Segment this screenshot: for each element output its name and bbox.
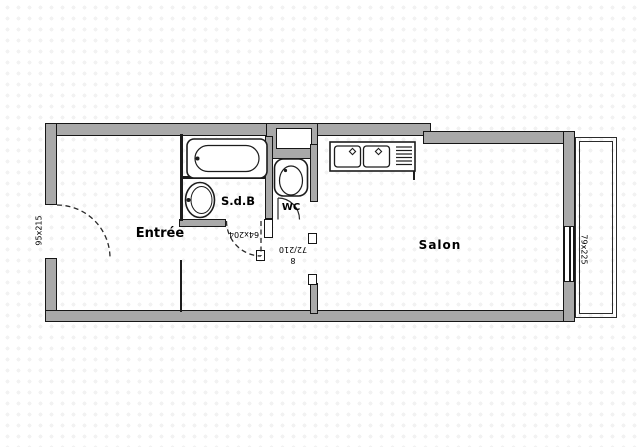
wall-top-right <box>423 131 575 144</box>
dim-entry-door: 95x215 <box>35 211 44 251</box>
jamb-salon-door-lower <box>308 274 317 285</box>
wall-sdb-wc <box>265 136 273 219</box>
wall-salon-upper <box>310 144 318 202</box>
jamb-salon-door-upper <box>308 233 317 244</box>
bathtub-icon <box>187 139 267 178</box>
fixtures-layer <box>0 0 640 447</box>
line-entree-partition <box>180 260 182 312</box>
room-label-entree: Entrée <box>124 226 196 241</box>
salon-window <box>563 227 575 281</box>
toilet-icon <box>275 159 308 196</box>
room-label-salon: Salon <box>404 238 476 252</box>
wall-left-upper <box>45 123 57 205</box>
dim-wc-door: 72/210 <box>273 245 313 254</box>
kitchen-sink-icon <box>330 142 415 171</box>
line-tub-front <box>181 176 266 179</box>
dim-sdb-door: 64x204 <box>224 230 264 239</box>
room-label-wc: WC <box>275 202 307 213</box>
wall-top-left <box>45 123 431 136</box>
dim-salon-window: 79x225 <box>580 230 589 270</box>
room-label-sdb: S.d.B <box>210 194 266 208</box>
wall-right-lower <box>563 281 575 322</box>
wall-right-upper <box>563 131 575 227</box>
duct-niche <box>276 128 312 149</box>
entry-door-swing-icon <box>57 205 110 258</box>
jamb-sdb-door <box>256 250 265 261</box>
window-center-line <box>569 227 571 281</box>
dim-wc-door-note: 8 <box>283 256 303 265</box>
jamb-wc-door <box>264 219 273 238</box>
wall-salon-lower <box>310 283 318 314</box>
balcony-outline-inner <box>579 141 613 314</box>
line-worktop-edge <box>413 144 415 180</box>
floor-plan: Entrée S.d.B WC Salon 95x215 64x204 72/2… <box>0 0 640 447</box>
